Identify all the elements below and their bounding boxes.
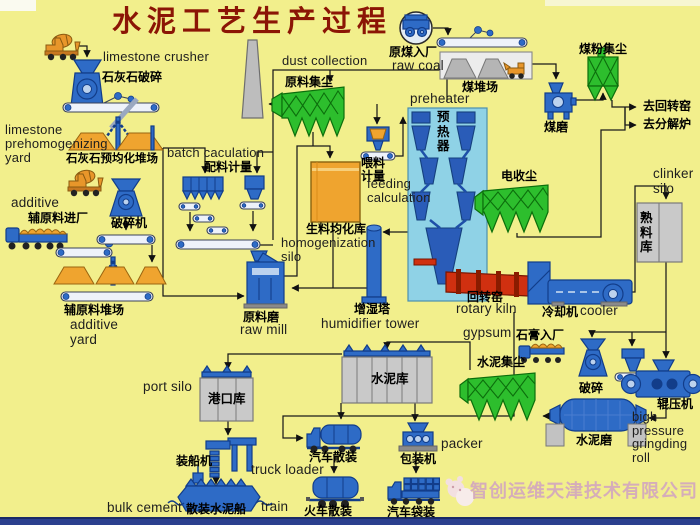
label-crusher-machine-zh: 破碎机 bbox=[111, 217, 147, 230]
page-title: 水泥工艺生产过程 bbox=[112, 6, 392, 37]
cooler-icon bbox=[528, 262, 632, 306]
packer-icon bbox=[399, 423, 437, 451]
conveyor-belt-batch bbox=[176, 240, 260, 249]
label-humidifier-zh: 增湿塔 bbox=[354, 303, 390, 316]
label-esp-zh: 电收尘 bbox=[501, 170, 537, 183]
coal-yard-icon bbox=[440, 52, 532, 79]
mixer-truck-limestone-icon bbox=[45, 33, 80, 61]
label-train-bulk-zh: 火车散装 bbox=[304, 505, 352, 518]
additive-crusher-icon bbox=[110, 179, 142, 216]
label-raw-dust-zh: 原料集尘 bbox=[285, 76, 333, 89]
conveyor-belts-additive bbox=[56, 235, 155, 257]
label-limestone-yard-zh: 石灰石预均化堆场 bbox=[66, 153, 158, 165]
label-train-en: train bbox=[261, 500, 288, 514]
label-roller-press-zh: 辊压机 bbox=[657, 398, 693, 411]
label-cement-dust-zh: 水泥集尘 bbox=[477, 356, 525, 369]
label-additive-in-zh: 辅原料进厂 bbox=[28, 212, 88, 225]
label-to-calciner-zh: 去分解炉 bbox=[643, 118, 691, 131]
cement-crusher-icon bbox=[579, 339, 607, 376]
label-truck-bag-zh: 汽车袋装 bbox=[387, 506, 435, 519]
label-bulk-cement-en: bulk cement bbox=[107, 501, 182, 515]
label-to-rotary-kiln-zh: 去回转窑 bbox=[643, 100, 691, 113]
label-cooler-zh: 冷却机 bbox=[542, 306, 578, 319]
label-homogenization-en: homogenization silo bbox=[281, 236, 376, 263]
label-clinker-silo-zh: 熟料库 bbox=[640, 211, 654, 255]
mixer-truck-additive-icon bbox=[68, 169, 103, 197]
additive-piles-icon bbox=[54, 257, 166, 285]
label-cooler-en: cooler bbox=[580, 304, 618, 318]
label-packer-zh: 包装机 bbox=[400, 453, 436, 466]
label-port-silo-en: port silo bbox=[143, 380, 192, 394]
single-hopper-icon bbox=[240, 176, 265, 209]
label-dust-collection-en: dust collection bbox=[282, 54, 367, 68]
additive-truck-icon bbox=[6, 228, 67, 250]
label-humidifier-en: humidifier tower bbox=[321, 317, 419, 331]
label-feeding-en: feeding calculation bbox=[367, 177, 431, 204]
ship-loader-icon bbox=[206, 438, 256, 477]
label-cement-mill-zh: 水泥磨 bbox=[576, 434, 612, 447]
limestone-crusher-icon bbox=[71, 60, 103, 106]
label-cement-crusher-zh: 破碎 bbox=[579, 382, 603, 395]
label-roller-press-en: bigh pressure gringding roll bbox=[632, 410, 687, 464]
gypsum-truck-icon bbox=[519, 344, 564, 363]
label-homogenization-zh: 生料均化库 bbox=[306, 223, 366, 236]
raw-dust-collector-icon bbox=[272, 87, 344, 136]
coal-mill-icon bbox=[545, 83, 576, 119]
label-raw-coal-zh: 原煤入厂 bbox=[389, 46, 437, 59]
homogenization-silo-icon bbox=[311, 162, 360, 222]
label-additive-yard-zh: 辅原料堆场 bbox=[64, 304, 124, 317]
coal-conveyor-icon bbox=[437, 27, 527, 48]
coal-crusher-station-icon bbox=[400, 12, 432, 44]
label-rotary-kiln-en: rotary kiln bbox=[456, 302, 517, 316]
label-gypsum-zh: 石膏入厂 bbox=[516, 329, 564, 342]
label-limestone-crusher-zh: 石灰石破碎 bbox=[102, 71, 162, 84]
watermark-text: 智创运维天津技术有限公司 bbox=[470, 482, 698, 501]
label-raw-coal-en: raw coal bbox=[392, 59, 444, 73]
label-raw-mill-en: raw mill bbox=[240, 323, 287, 337]
label-truck-loader-en: truck loader bbox=[251, 463, 324, 477]
conveyor-belt-yard bbox=[61, 292, 153, 301]
label-limestone-crusher-en: limestone crusher bbox=[103, 50, 209, 64]
bag-truck-icon bbox=[388, 478, 440, 505]
label-additive-yard-en: additive yard bbox=[70, 317, 118, 347]
label-clinker-silo-en: clinker silo bbox=[653, 166, 693, 196]
label-packer-en: packer bbox=[441, 437, 483, 451]
label-ship-loader-zh: 装船机 bbox=[176, 455, 212, 468]
label-coal-mill-zh: 煤磨 bbox=[544, 121, 568, 134]
label-batch-calc-en: batch caculation bbox=[167, 146, 264, 160]
label-batch-calc-zh: 配料计量 bbox=[204, 161, 252, 174]
chimney-icon bbox=[242, 40, 263, 118]
batch-hoppers-icon bbox=[179, 177, 228, 234]
cement-dust-collector-icon bbox=[460, 373, 535, 420]
label-port-silo-zh: 港口库 bbox=[208, 393, 246, 406]
label-gypsum-en: gypsum bbox=[463, 326, 511, 340]
label-bulk-ship-zh: 散装水泥船 bbox=[186, 503, 246, 516]
label-preheater-zh: 预热器 bbox=[437, 110, 451, 154]
label-preheater-en: preheater bbox=[410, 92, 470, 106]
label-coal-dust-zh: 煤粉集尘 bbox=[579, 43, 627, 56]
label-truck-bulk-zh: 汽车散装 bbox=[309, 451, 357, 464]
bulk-tanker-truck-icon bbox=[307, 425, 361, 453]
bottom-strip bbox=[0, 517, 700, 525]
label-additive-en: additive bbox=[11, 196, 59, 210]
cement-process-diagram: 水泥工艺生产过程 limestone crusher 石灰石破碎 limesto… bbox=[0, 0, 700, 525]
label-cement-silo-zh: 水泥库 bbox=[371, 373, 409, 386]
